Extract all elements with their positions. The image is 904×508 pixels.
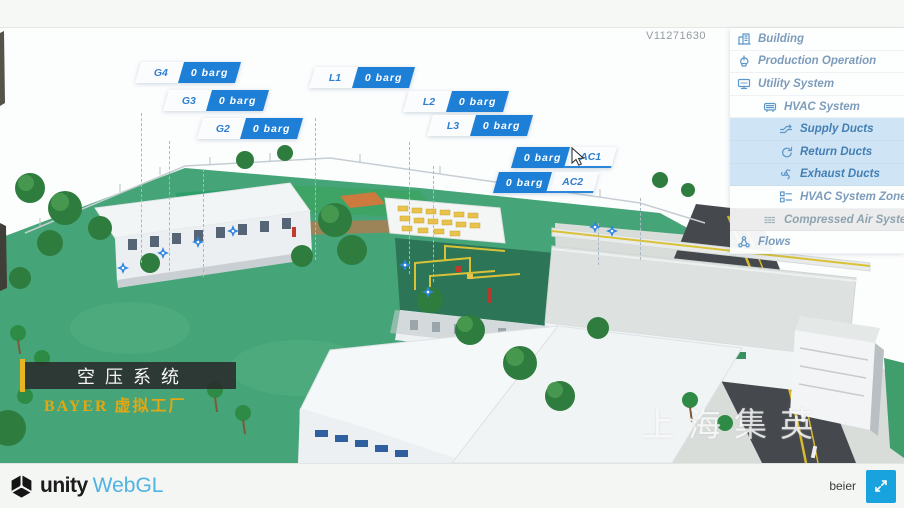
pressure-tag-l2[interactable]: L2 0 barg (406, 91, 506, 112)
tag-id: AC2 (546, 172, 599, 193)
pressure-tag-g4[interactable]: G4 0 barg (138, 62, 238, 83)
sidebar-item-label: Building (758, 33, 804, 45)
flows-icon (736, 235, 751, 249)
footer-bar: unity WebGL beier (0, 463, 904, 508)
tag-value: 0 barg (240, 118, 303, 139)
app-window: 上海集英 G4 0 barg G3 0 barg G2 0 barg L1 0 … (0, 0, 904, 508)
user-label: beier (829, 479, 856, 493)
unity-label: unity (40, 474, 88, 498)
pressure-tag-l1[interactable]: L1 0 barg (312, 67, 412, 88)
tag-value: 0 barg (446, 91, 509, 112)
tag-value: 0 barg (470, 115, 533, 136)
fullscreen-icon (873, 478, 889, 494)
hvac-zones-icon (778, 190, 793, 204)
sidebar-item-return-ducts[interactable]: Return Ducts (730, 141, 904, 164)
sidebar-item-label: Production Operation (758, 55, 876, 67)
sidebar-item-label: Utility System (758, 78, 834, 90)
pressure-tag-g3[interactable]: G3 0 barg (166, 90, 266, 111)
sidebar-item-building[interactable]: Building (730, 28, 904, 51)
sidebar-item-label: Exhaust Ducts (800, 168, 880, 180)
top-bar (0, 0, 904, 28)
sidebar-item-production-operation[interactable]: Production Operation (730, 51, 904, 74)
system-tree-panel: Building Production Operation Utility Sy… (730, 28, 904, 254)
tag-value: 0 barg (178, 62, 241, 83)
pressure-tag-l3[interactable]: L3 0 barg (430, 115, 530, 136)
sidebar-item-compressed-air-system[interactable]: Compressed Air System (730, 209, 904, 232)
utility-system-icon (736, 77, 751, 91)
sidebar-item-supply-ducts[interactable]: Supply Ducts (730, 118, 904, 141)
production-operation-icon (736, 54, 751, 68)
compressed-air-icon (762, 213, 777, 227)
sidebar-item-flows[interactable]: Flows (730, 231, 904, 254)
unity-brand: unity WebGL (8, 473, 164, 500)
return-ducts-icon (778, 145, 793, 159)
sidebar-item-label: Return Ducts (800, 146, 872, 158)
pressure-tag-ac2[interactable]: 0 barg AC2 (496, 172, 596, 193)
sidebar-item-exhaust-ducts[interactable]: Exhaust Ducts (730, 164, 904, 187)
pressure-tag-g2[interactable]: G2 0 barg (200, 118, 300, 139)
exhaust-ducts-icon (778, 167, 793, 181)
sidebar-item-label: HVAC System (784, 101, 860, 113)
unity-logo-icon (8, 473, 35, 500)
sidebar-item-label: Compressed Air System (784, 214, 904, 226)
sidebar-item-hvac-system[interactable]: HVAC System (730, 96, 904, 119)
fullscreen-button[interactable] (866, 470, 896, 503)
sidebar-item-label: Supply Ducts (800, 123, 873, 135)
hvac-system-icon (762, 100, 777, 114)
sidebar-item-label: Flows (758, 236, 791, 248)
sidebar-item-hvac-system-zones[interactable]: HVAC System Zones (730, 186, 904, 209)
tag-value: 0 barg (352, 67, 415, 88)
building-icon (736, 32, 751, 46)
sidebar-item-label: HVAC System Zones (800, 191, 904, 203)
pressure-tag-ac1[interactable]: 0 barg AC1 (514, 147, 614, 168)
sidebar-item-utility-system[interactable]: Utility System (730, 73, 904, 96)
tag-id: AC1 (564, 147, 617, 168)
webgl-label: WebGL (93, 474, 164, 498)
tag-value: 0 barg (206, 90, 269, 111)
version-label: V11271630 (646, 30, 706, 42)
supply-ducts-icon (778, 122, 793, 136)
